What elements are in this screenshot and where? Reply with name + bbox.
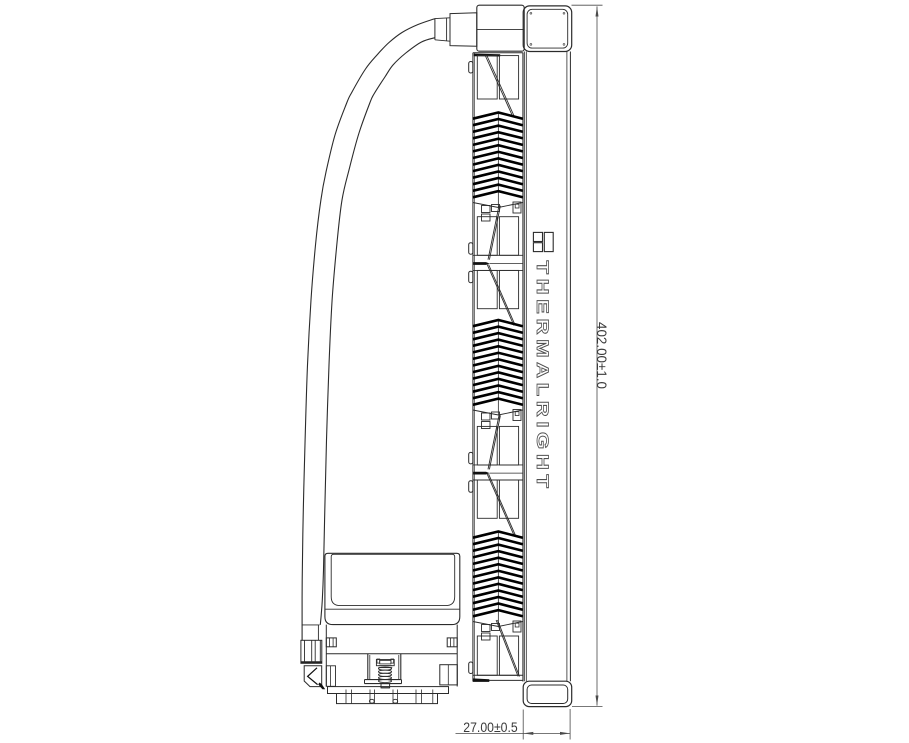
svg-text:402.00±1.0: 402.00±1.0 xyxy=(594,322,609,389)
svg-text:27.00±0.5: 27.00±0.5 xyxy=(463,720,517,735)
svg-text:THERMALRIGHT: THERMALRIGHT xyxy=(533,261,552,493)
